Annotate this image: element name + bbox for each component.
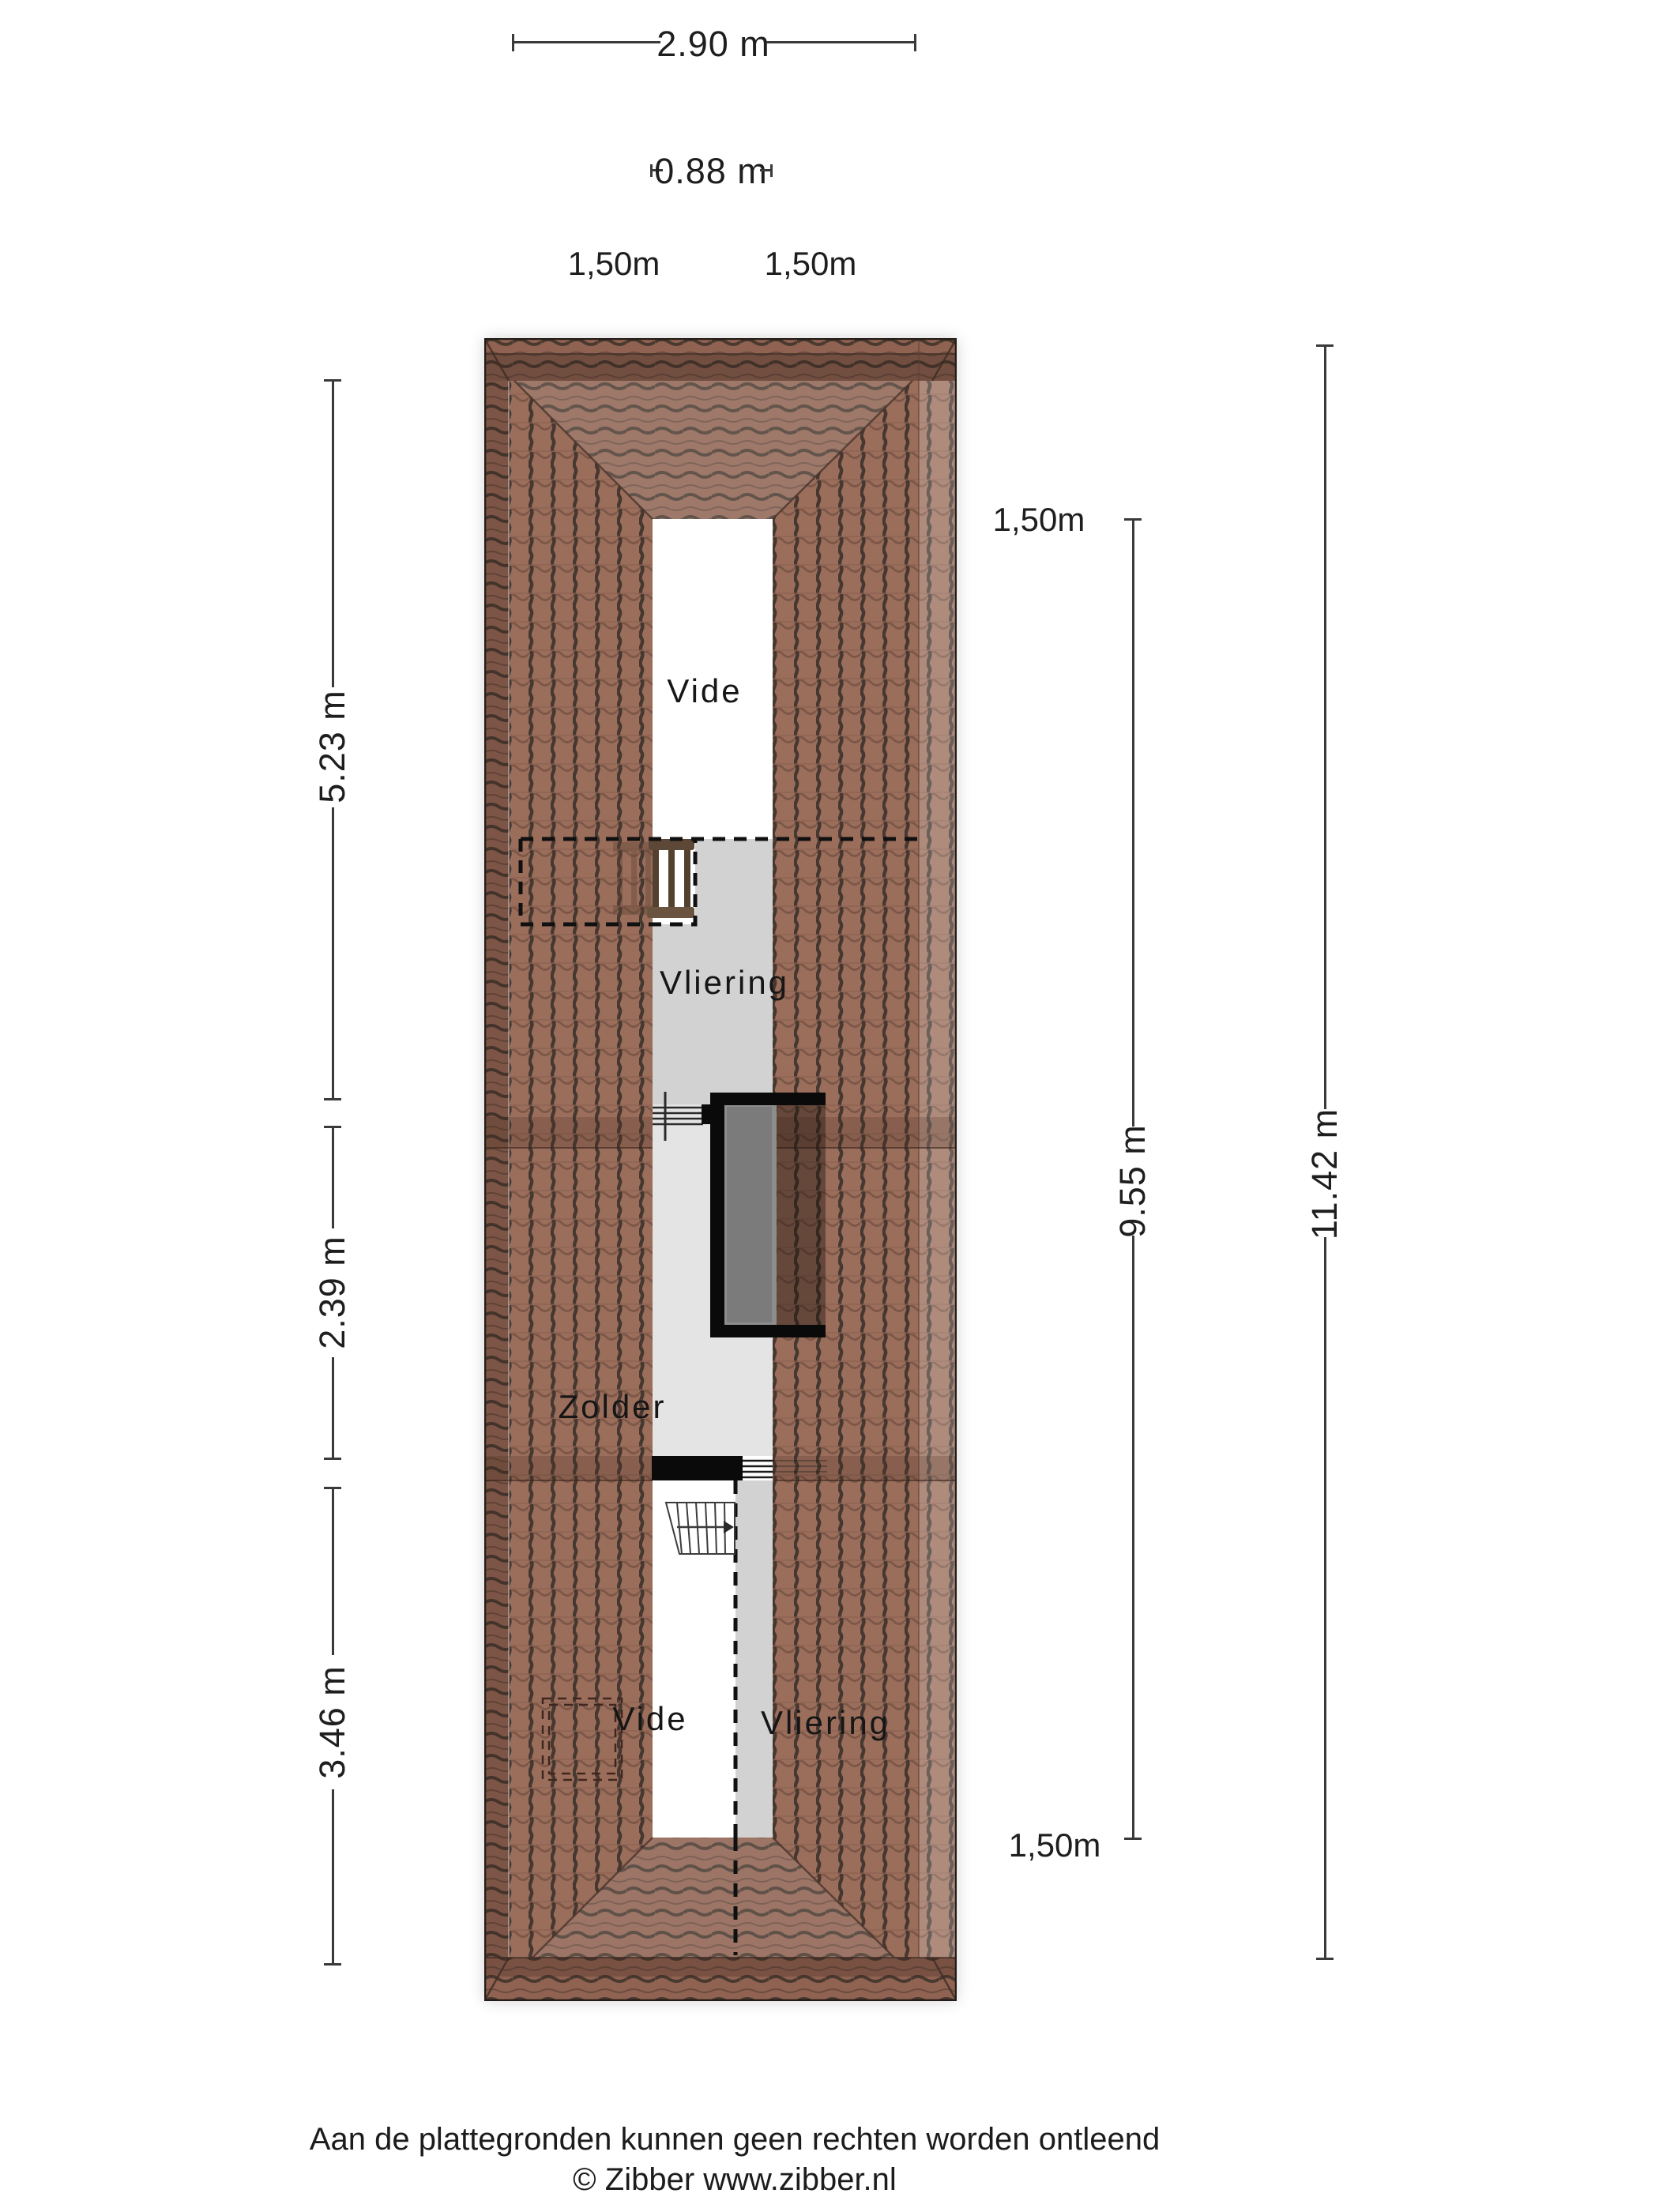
dim-left-s1-tick-bottom bbox=[324, 1098, 341, 1100]
dim-vide-width-label: 0.88 m bbox=[654, 151, 768, 192]
dim-left-s2-label: 2.39 m bbox=[312, 1236, 353, 1349]
room-label-zolder: Zolder bbox=[558, 1388, 666, 1426]
footer: Aan de plattegronden kunnen geen rechten… bbox=[0, 2122, 1469, 2198]
dim-vide-width-tick-right bbox=[770, 164, 773, 177]
roof-plan-drawing bbox=[484, 338, 957, 2001]
dim-top-width-line-a bbox=[512, 41, 660, 43]
dim-slope-left-label: 1,50m bbox=[568, 245, 660, 283]
stairwell-box bbox=[710, 1093, 826, 1337]
room-label-vliering-top: Vliering bbox=[660, 964, 789, 1002]
dim-right-bottom-label: 1,50m bbox=[1009, 1826, 1101, 1864]
dim-left-s3-line-a bbox=[332, 1487, 334, 1655]
dim-left-s3-label: 3.46 m bbox=[312, 1665, 353, 1779]
dim-right-inner-label: 9.55 m bbox=[1112, 1124, 1153, 1238]
dim-left-s2-line-a bbox=[332, 1126, 334, 1228]
room-label-vide-bottom: Vide bbox=[612, 1700, 687, 1738]
wall-bar-black bbox=[652, 1456, 743, 1480]
room-label-vide-top: Vide bbox=[667, 672, 742, 710]
dim-left-s1-line-a bbox=[332, 379, 334, 687]
dim-left-s1-label: 5.23 m bbox=[312, 690, 353, 803]
dim-left-s2-line-b bbox=[332, 1357, 334, 1459]
dim-right-total-line-a bbox=[1324, 344, 1326, 1109]
dim-right-top-label: 1,50m bbox=[993, 501, 1085, 539]
dim-right-inner-tick-bottom bbox=[1124, 1838, 1142, 1840]
dim-top-width-line-b bbox=[766, 41, 914, 43]
dim-right-total-tick-bottom bbox=[1316, 1958, 1334, 1960]
roof-right-eave-strip bbox=[919, 338, 957, 2001]
dim-left-s1-line-b bbox=[332, 807, 334, 1100]
dim-right-total-label: 11.42 m bbox=[1304, 1108, 1345, 1240]
floorplan-page: 2.90 m 0.88 m 1,50m 1,50m bbox=[0, 0, 1659, 2212]
dim-left-s3-tick-bottom bbox=[324, 1963, 341, 1966]
footer-disclaimer: Aan de plattegronden kunnen geen rechten… bbox=[0, 2122, 1469, 2157]
dim-right-inner-line-b bbox=[1132, 1236, 1134, 1839]
dim-slope-right-label: 1,50m bbox=[765, 245, 857, 283]
room-label-vliering-bottom: Vliering bbox=[761, 1704, 890, 1742]
dim-right-inner-line-a bbox=[1132, 518, 1134, 1127]
footer-copyright: © Zibber www.zibber.nl bbox=[0, 2162, 1469, 2198]
dim-left-s2-tick-bottom bbox=[324, 1458, 341, 1460]
dim-left-s3-line-b bbox=[332, 1789, 334, 1965]
dim-right-total-line-b bbox=[1324, 1237, 1326, 1959]
vliering-bottom-floor bbox=[735, 1480, 773, 1838]
dim-top-width-label: 2.90 m bbox=[656, 24, 770, 65]
dim-top-width-tick-right bbox=[914, 34, 916, 51]
